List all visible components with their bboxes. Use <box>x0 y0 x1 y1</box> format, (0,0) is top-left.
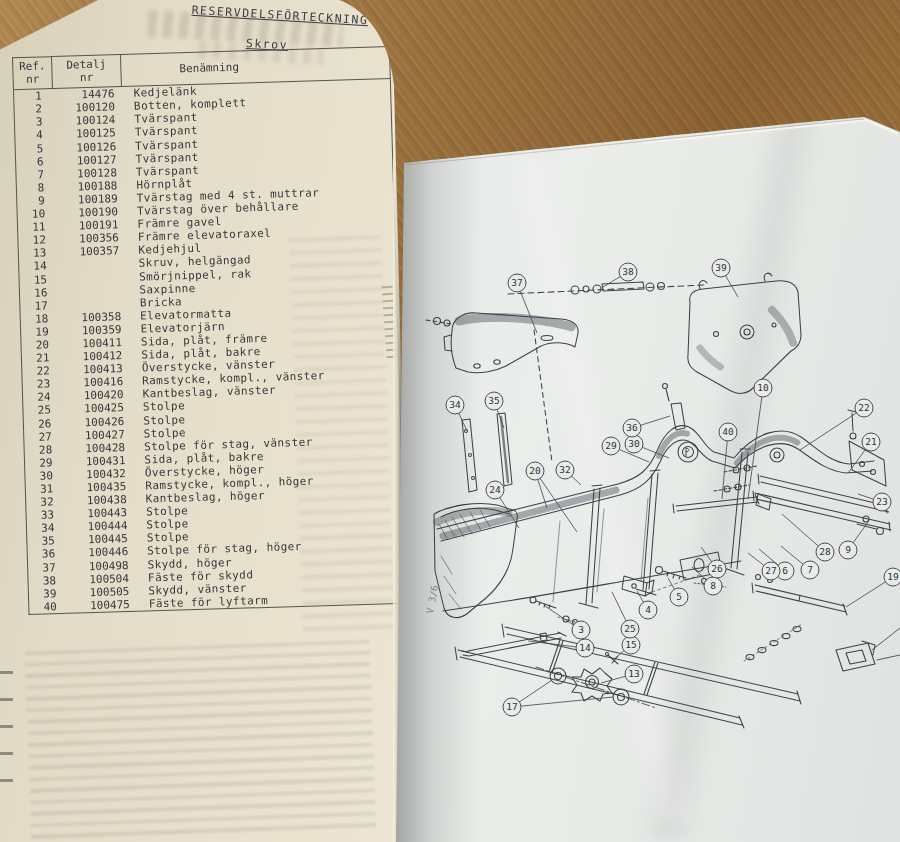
col-header-ref: Ref. nr <box>13 57 53 90</box>
photo-of-open-parts-manual: RESERVDELSFÖRTECKNING Skrov Ref. nr Deta… <box>0 0 900 842</box>
bleed-through-text <box>25 639 376 839</box>
ref-nr-cell: 16 <box>19 286 58 300</box>
page-edge-marks <box>0 652 13 782</box>
ref-nr-cell: 37 <box>27 560 66 574</box>
ref-nr-cell: 32 <box>26 495 65 509</box>
ref-nr-cell: 20 <box>21 338 60 352</box>
detalj-nr-cell: 100357 <box>57 244 126 259</box>
ref-nr-cell: 14 <box>19 259 58 273</box>
col-header-detalj-line1: Detalj <box>66 58 106 72</box>
paper-crease <box>620 120 840 840</box>
ref-nr-cell: 11 <box>17 220 56 234</box>
ref-nr-cell: 40 <box>29 600 68 615</box>
ref-nr-cell: 31 <box>25 482 64 496</box>
ref-nr-cell: 7 <box>16 168 55 182</box>
ref-nr-cell: 3 <box>14 115 53 129</box>
ref-nr-cell: 29 <box>24 456 63 470</box>
ref-nr-cell: 39 <box>28 587 67 601</box>
ref-nr-cell: 4 <box>15 129 54 143</box>
ref-nr-cell: 19 <box>20 325 59 339</box>
ref-nr-cell: 28 <box>24 443 63 457</box>
ref-nr-cell: 25 <box>23 403 62 417</box>
ref-nr-cell: 18 <box>20 312 59 326</box>
detalj-nr-cell: 100475 <box>68 598 137 614</box>
col-header-ref-line2: nr <box>26 73 40 86</box>
ref-nr-cell: 5 <box>15 142 54 156</box>
ref-nr-cell: 34 <box>26 521 65 535</box>
page-title: RESERVDELSFÖRTECKNING <box>190 3 371 28</box>
parts-table-body: 114476Kedjelänk2100120Botten, komplett31… <box>13 79 405 615</box>
parts-table: Ref. nr Detalj nr Benämning 114476Kedjel… <box>12 46 406 615</box>
ref-nr-cell: 35 <box>27 534 66 548</box>
ref-nr-cell: 17 <box>20 299 59 313</box>
col-header-ref-line1: Ref. <box>19 59 46 73</box>
ref-nr-cell: 9 <box>17 194 56 208</box>
ref-nr-cell: 6 <box>15 155 54 169</box>
ref-nr-cell: 15 <box>19 273 58 287</box>
ref-nr-cell: 2 <box>14 102 53 116</box>
ref-nr-cell: 26 <box>23 416 62 430</box>
col-header-detalj: Detalj nr <box>52 55 122 89</box>
ref-nr-cell: 22 <box>22 364 61 378</box>
ref-nr-cell: 1 <box>13 89 52 104</box>
ref-nr-cell: 8 <box>16 181 55 195</box>
ref-nr-cell: 10 <box>17 207 56 221</box>
ref-nr-cell: 38 <box>28 574 67 588</box>
ref-nr-cell: 36 <box>27 547 66 561</box>
ref-nr-cell: 12 <box>18 233 57 247</box>
ref-nr-cell: 23 <box>22 377 61 391</box>
ref-nr-cell: 30 <box>25 469 64 483</box>
ref-nr-cell: 33 <box>26 508 65 522</box>
ref-nr-cell: 21 <box>21 351 60 365</box>
ref-nr-cell: 27 <box>24 430 63 444</box>
ref-nr-cell: 13 <box>18 246 57 260</box>
ref-nr-cell: 24 <box>22 390 61 404</box>
col-header-detalj-line2: nr <box>80 71 94 84</box>
